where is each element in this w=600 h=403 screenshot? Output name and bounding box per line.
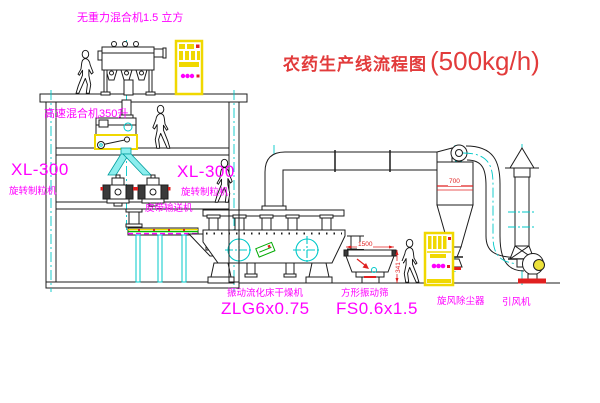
knob-icon [432, 264, 437, 269]
dim-sieve-height: 341 [396, 261, 403, 274]
granulator-discharge-pipe [126, 209, 142, 227]
granulator-left [101, 175, 136, 206]
indicator-light-icon [447, 265, 450, 268]
cad-flow-diagram: 无重力混合机1.5 立方 高速混合机350升 XL-300 旋转制粒机 XL-3… [0, 0, 600, 403]
fan-motor-icon [534, 260, 545, 271]
page-title: 农药生产线流程图 (500kg/h) [283, 46, 540, 77]
knob-icon [181, 74, 185, 78]
label-sieve-name: 方形振动筛 [341, 289, 389, 299]
knob-icon [185, 74, 189, 78]
knob-icon [190, 74, 194, 78]
dim-cyclone-tag: 700 [448, 179, 461, 186]
control-cabinet-top [176, 41, 202, 94]
dryer-nozzles [207, 215, 333, 230]
label-sieve-model: FS0.6x1.5 [336, 300, 418, 317]
label-gravity-free-mixer: 无重力混合机1.5 立方 [77, 13, 183, 24]
indicator-light-icon [196, 45, 200, 49]
stack-cap-icon [510, 148, 534, 168]
indicator-light-icon [197, 75, 200, 78]
fan-base [518, 279, 546, 284]
label-granulator-mid: 旋转制粒机 [181, 188, 229, 198]
title-capacity: (500kg/h) [430, 46, 540, 77]
label-cyclone: 旋风除尘器 [437, 297, 485, 307]
dim-sieve-length: 1500 [357, 242, 373, 249]
control-cabinet-right [425, 233, 453, 285]
label-granulator-left: 旋转制粒机 [9, 187, 57, 197]
label-dryer-name: 振动流化床干燥机 [227, 289, 303, 299]
knob-icon [436, 264, 441, 269]
label-belt-conveyor: 皮带输送机 [145, 204, 193, 214]
label-xl300-mid: XL-300 [177, 163, 235, 180]
exhaust-duct [262, 148, 452, 210]
granulator-right [136, 175, 171, 206]
exhaust-stack [505, 148, 539, 259]
knob-icon [441, 264, 446, 269]
label-xl300-left: XL-300 [11, 161, 69, 178]
label-dryer-model: ZLG6x0.75 [221, 300, 310, 317]
title-chinese: 农药生产线流程图 [283, 50, 427, 75]
label-high-speed-mixer: 高速混合机350升 [44, 109, 128, 120]
indicator-light-icon [448, 237, 451, 240]
person-figure [76, 50, 93, 93]
person-figure [402, 239, 419, 282]
gravity-free-mixer [98, 42, 166, 96]
fluid-bed-dryer [203, 210, 345, 283]
belt-conveyor [128, 228, 198, 282]
label-fan: 引风机 [502, 298, 531, 308]
person-figure [153, 105, 170, 148]
